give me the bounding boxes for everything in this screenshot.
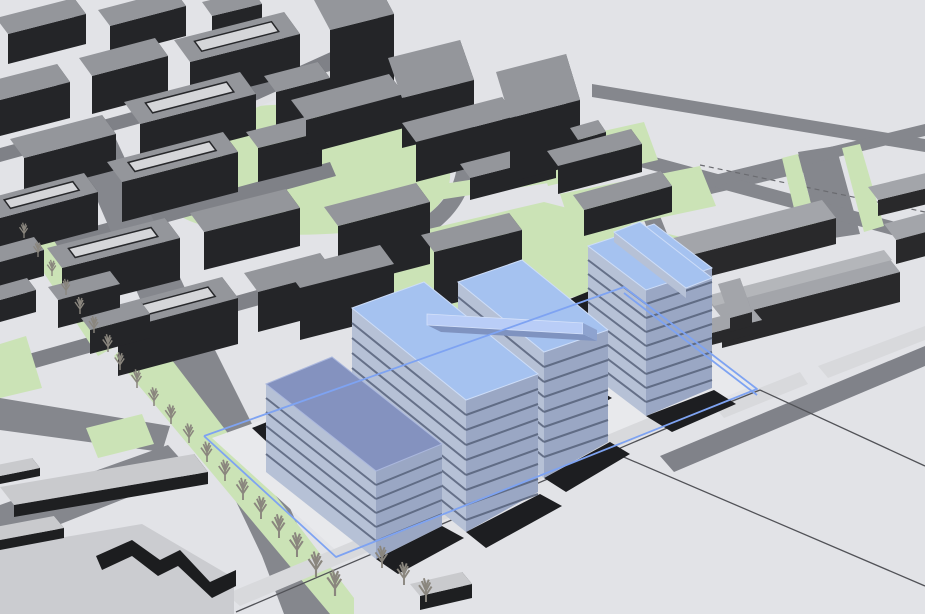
city-model-scene[interactable] xyxy=(0,0,925,614)
model-viewport[interactable] xyxy=(0,0,925,614)
